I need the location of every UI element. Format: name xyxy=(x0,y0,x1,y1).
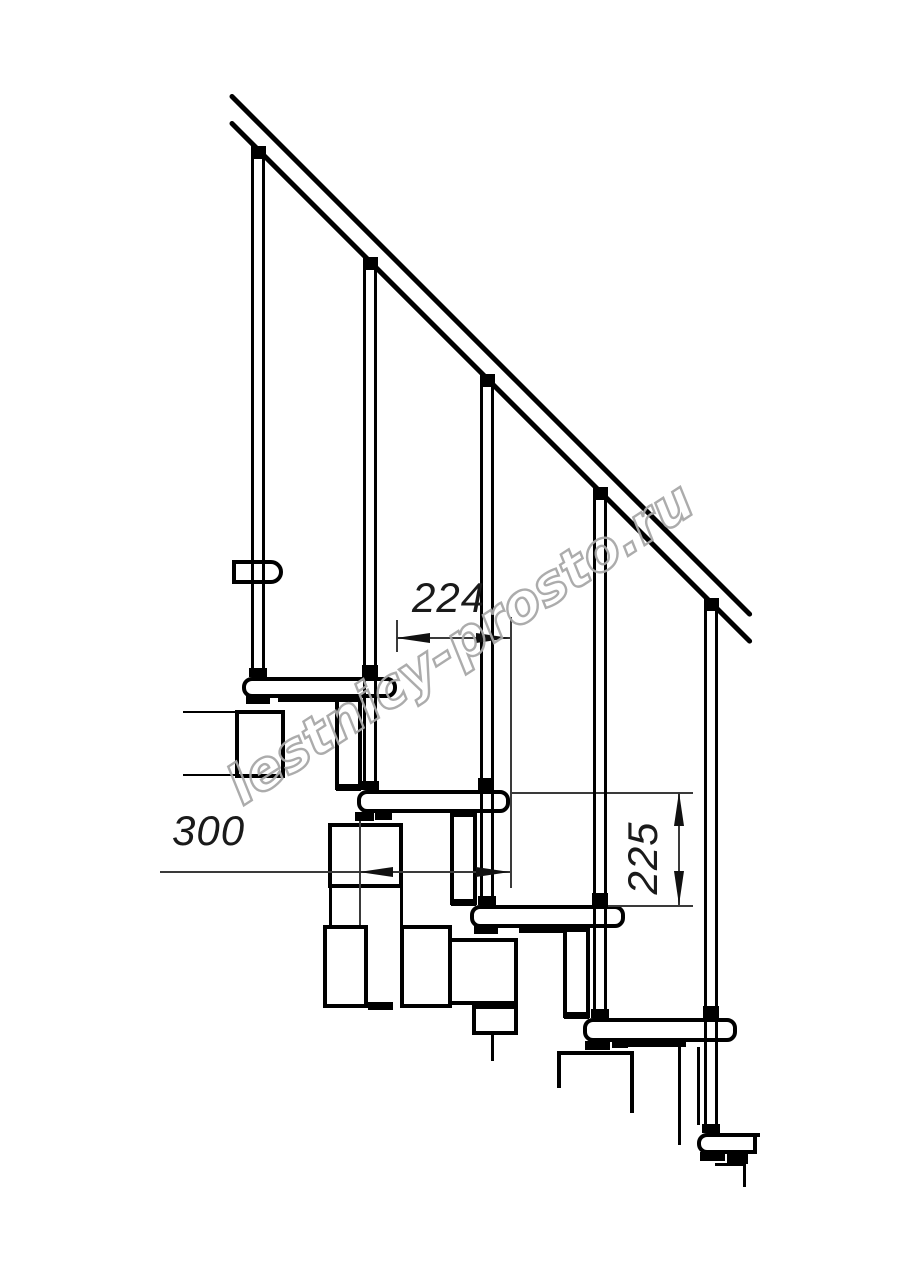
baluster-4-tread-joint xyxy=(592,893,608,905)
tread-3-bracket-a xyxy=(474,925,498,934)
support-column-3 xyxy=(563,928,590,1018)
baluster-1-foot xyxy=(249,668,267,677)
arrow-depth-right xyxy=(476,867,510,877)
baluster-3-tread-joint xyxy=(478,778,494,790)
arrow-depth-left xyxy=(359,867,393,877)
support-column-4-right xyxy=(697,1047,700,1125)
tread-2-bracket-b xyxy=(375,813,392,820)
support-module-2b xyxy=(323,925,368,1008)
module-4-left-edge xyxy=(557,1051,561,1088)
baluster-5-foot xyxy=(702,1124,720,1133)
extension-line-spacing-right xyxy=(510,617,512,888)
baluster-4-foot xyxy=(591,1009,609,1018)
module-1-cut-line-top xyxy=(183,711,235,713)
baluster-3-cap xyxy=(480,374,495,387)
tread-4 xyxy=(583,1018,737,1042)
upper-flight-tread-end xyxy=(232,560,283,584)
support-module-3b xyxy=(472,1005,518,1035)
baluster-5-left-line xyxy=(704,611,707,1133)
support-column-2 xyxy=(450,813,477,905)
dimension-label-step-rise: 225 xyxy=(622,821,664,894)
tread-2 xyxy=(357,790,510,813)
support-module-2 xyxy=(328,823,403,888)
baluster-4-cap xyxy=(593,487,608,500)
dimension-label-tread-depth: 300 xyxy=(172,810,245,852)
baluster-3-foot xyxy=(478,896,496,905)
extension-line-rise-bottom xyxy=(608,905,693,907)
column-2-base-plate xyxy=(451,899,476,906)
module-4-right-edge xyxy=(630,1051,634,1113)
baluster-1-left-line xyxy=(251,158,254,677)
arrow-rise-down xyxy=(674,871,684,905)
tread-5-bracket-a xyxy=(700,1152,725,1161)
column-3-base-plate xyxy=(564,1012,589,1019)
baluster-2-foot xyxy=(361,781,379,790)
baluster-5-cap xyxy=(704,598,719,611)
module-3-break-line xyxy=(491,1035,494,1061)
module-2-base-strip xyxy=(368,1002,393,1010)
baluster-1-right-line xyxy=(262,158,265,677)
tread-4-bracket-c xyxy=(622,1042,686,1047)
module-4-top-edge xyxy=(557,1051,633,1055)
tread-2-bracket-a xyxy=(355,812,374,821)
staircase-drawing: 224 300 225 lestnicy-prosto.ru xyxy=(0,0,914,1280)
tread-5-top-extension xyxy=(748,1133,760,1137)
floor-step-line-v xyxy=(743,1163,746,1187)
support-module-2c xyxy=(400,925,452,1008)
support-column-4-left xyxy=(678,1047,681,1145)
tread-5-bracket-b xyxy=(727,1153,748,1164)
baluster-5-right-line xyxy=(715,611,718,1133)
module-2-neck-right xyxy=(400,888,403,925)
support-module-3 xyxy=(442,938,518,1005)
arrow-rise-up xyxy=(674,792,684,826)
column-1-base-plate xyxy=(336,784,361,791)
baluster-5-tread-joint xyxy=(703,1006,719,1018)
extension-line-rise-top xyxy=(512,792,693,794)
dimension-line-depth xyxy=(160,871,511,873)
tread-3-bracket-b xyxy=(519,927,565,933)
tread-4-bracket-a xyxy=(585,1041,610,1050)
tread-1-bracket-a xyxy=(246,695,270,704)
module-2-neck-left xyxy=(329,888,332,925)
baluster-1-cap xyxy=(251,146,266,159)
baluster-2-cap xyxy=(363,257,378,270)
